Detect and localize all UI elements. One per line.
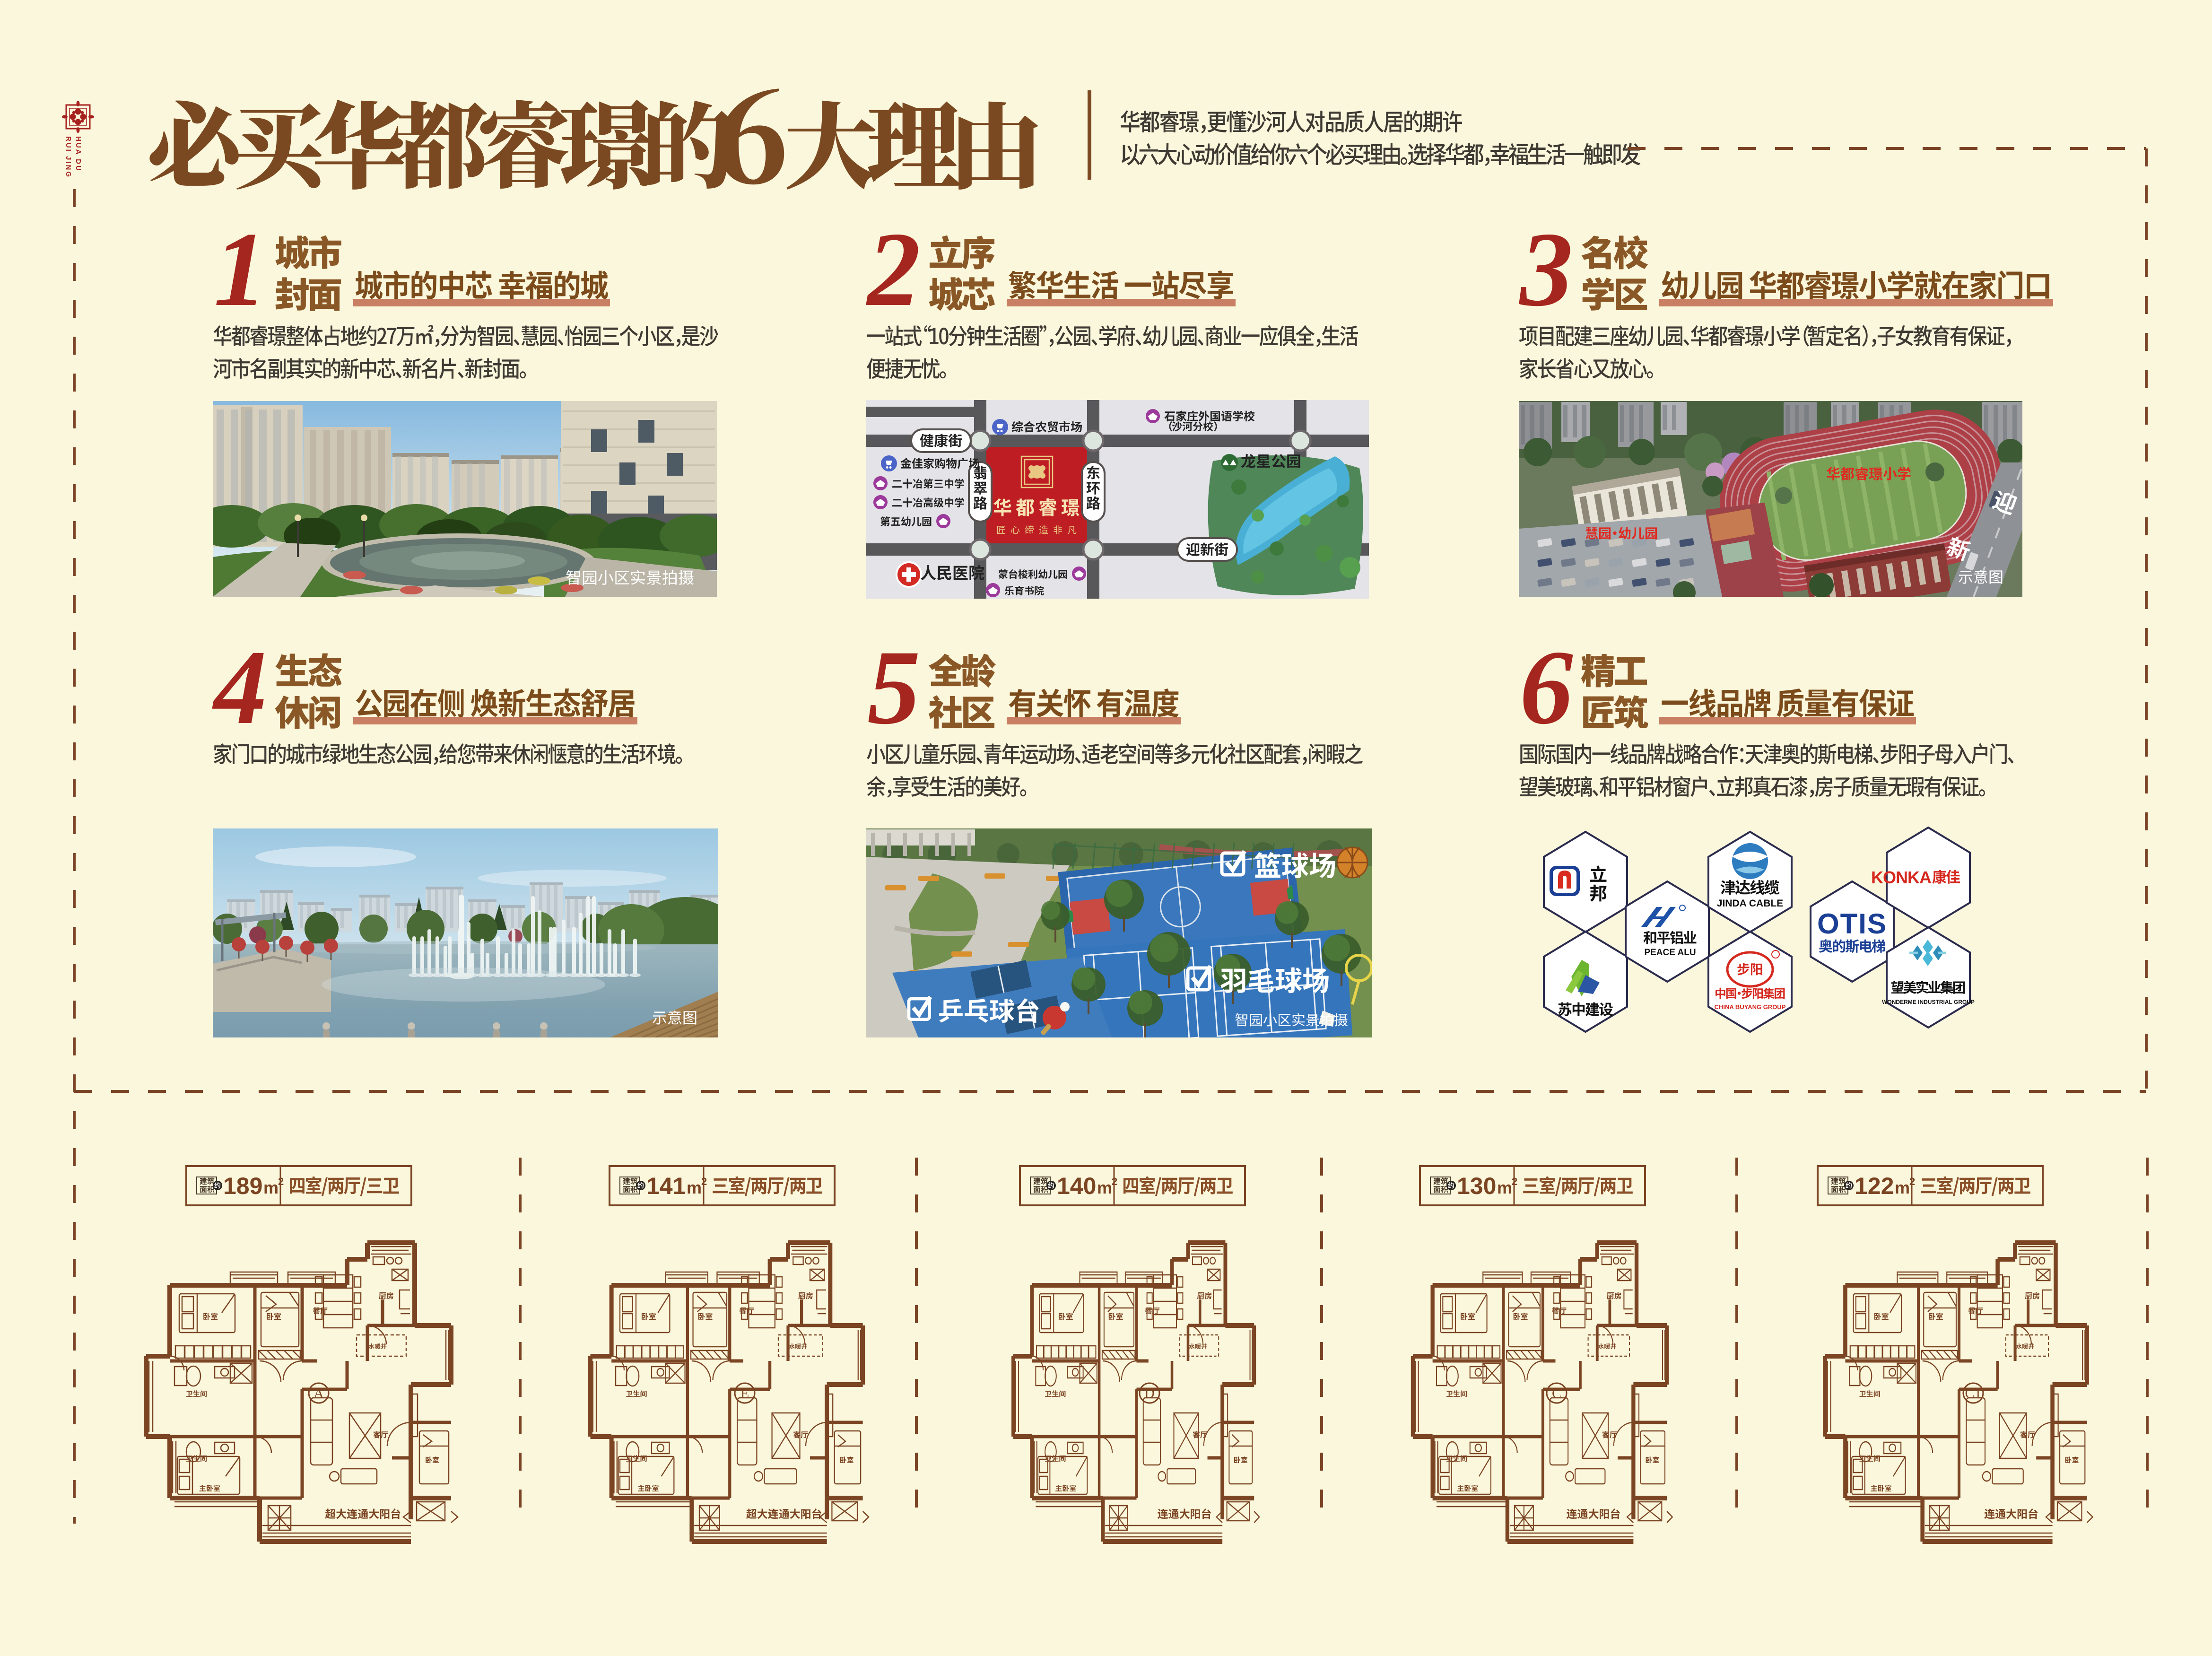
svg-text:130: 130 [1457,1173,1496,1199]
svg-text:CHINA BUYANG GROUP: CHINA BUYANG GROUP [1715,1003,1786,1011]
svg-text:m: m [263,1178,279,1197]
svg-text:WONDERME INDUSTRIAL GROUP: WONDERME INDUSTRIAL GROUP [1882,999,1975,1005]
svg-text:OTIS: OTIS [1817,908,1887,940]
svg-text:HUA DU: HUA DU [74,136,82,172]
svg-text:122: 122 [1855,1173,1894,1199]
svg-text:4: 4 [212,628,267,746]
svg-text:E: E [740,1386,749,1401]
svg-text:PEACE ALU: PEACE ALU [1644,948,1696,958]
svg-text:2: 2 [866,210,921,328]
svg-text:m: m [1895,1178,1910,1197]
svg-text:RUI JING: RUI JING [64,136,72,178]
svg-text:m: m [1097,1178,1112,1197]
svg-text:KONKA: KONKA [1871,868,1932,887]
svg-text:5: 5 [867,628,921,746]
svg-text:3: 3 [1519,210,1573,328]
svg-text:C: C [1552,1386,1561,1401]
svg-text:1: 1 [214,210,267,328]
svg-text:2: 2 [1909,1176,1915,1187]
svg-text:6: 6 [1520,628,1573,746]
svg-text:D: D [1144,1386,1155,1401]
svg-text:m: m [1497,1178,1512,1197]
svg-text:2: 2 [701,1176,707,1187]
svg-text:2: 2 [278,1176,284,1187]
svg-text:189: 189 [223,1173,262,1199]
svg-text:C1: C1 [1965,1386,1981,1401]
svg-text:2: 2 [1112,1176,1117,1187]
svg-text:A: A [314,1386,324,1401]
svg-text:2: 2 [1512,1176,1517,1187]
svg-text:140: 140 [1057,1173,1096,1199]
svg-text:m: m [687,1178,702,1197]
svg-text:JINDA CABLE: JINDA CABLE [1717,898,1783,909]
svg-text:141: 141 [646,1173,686,1199]
